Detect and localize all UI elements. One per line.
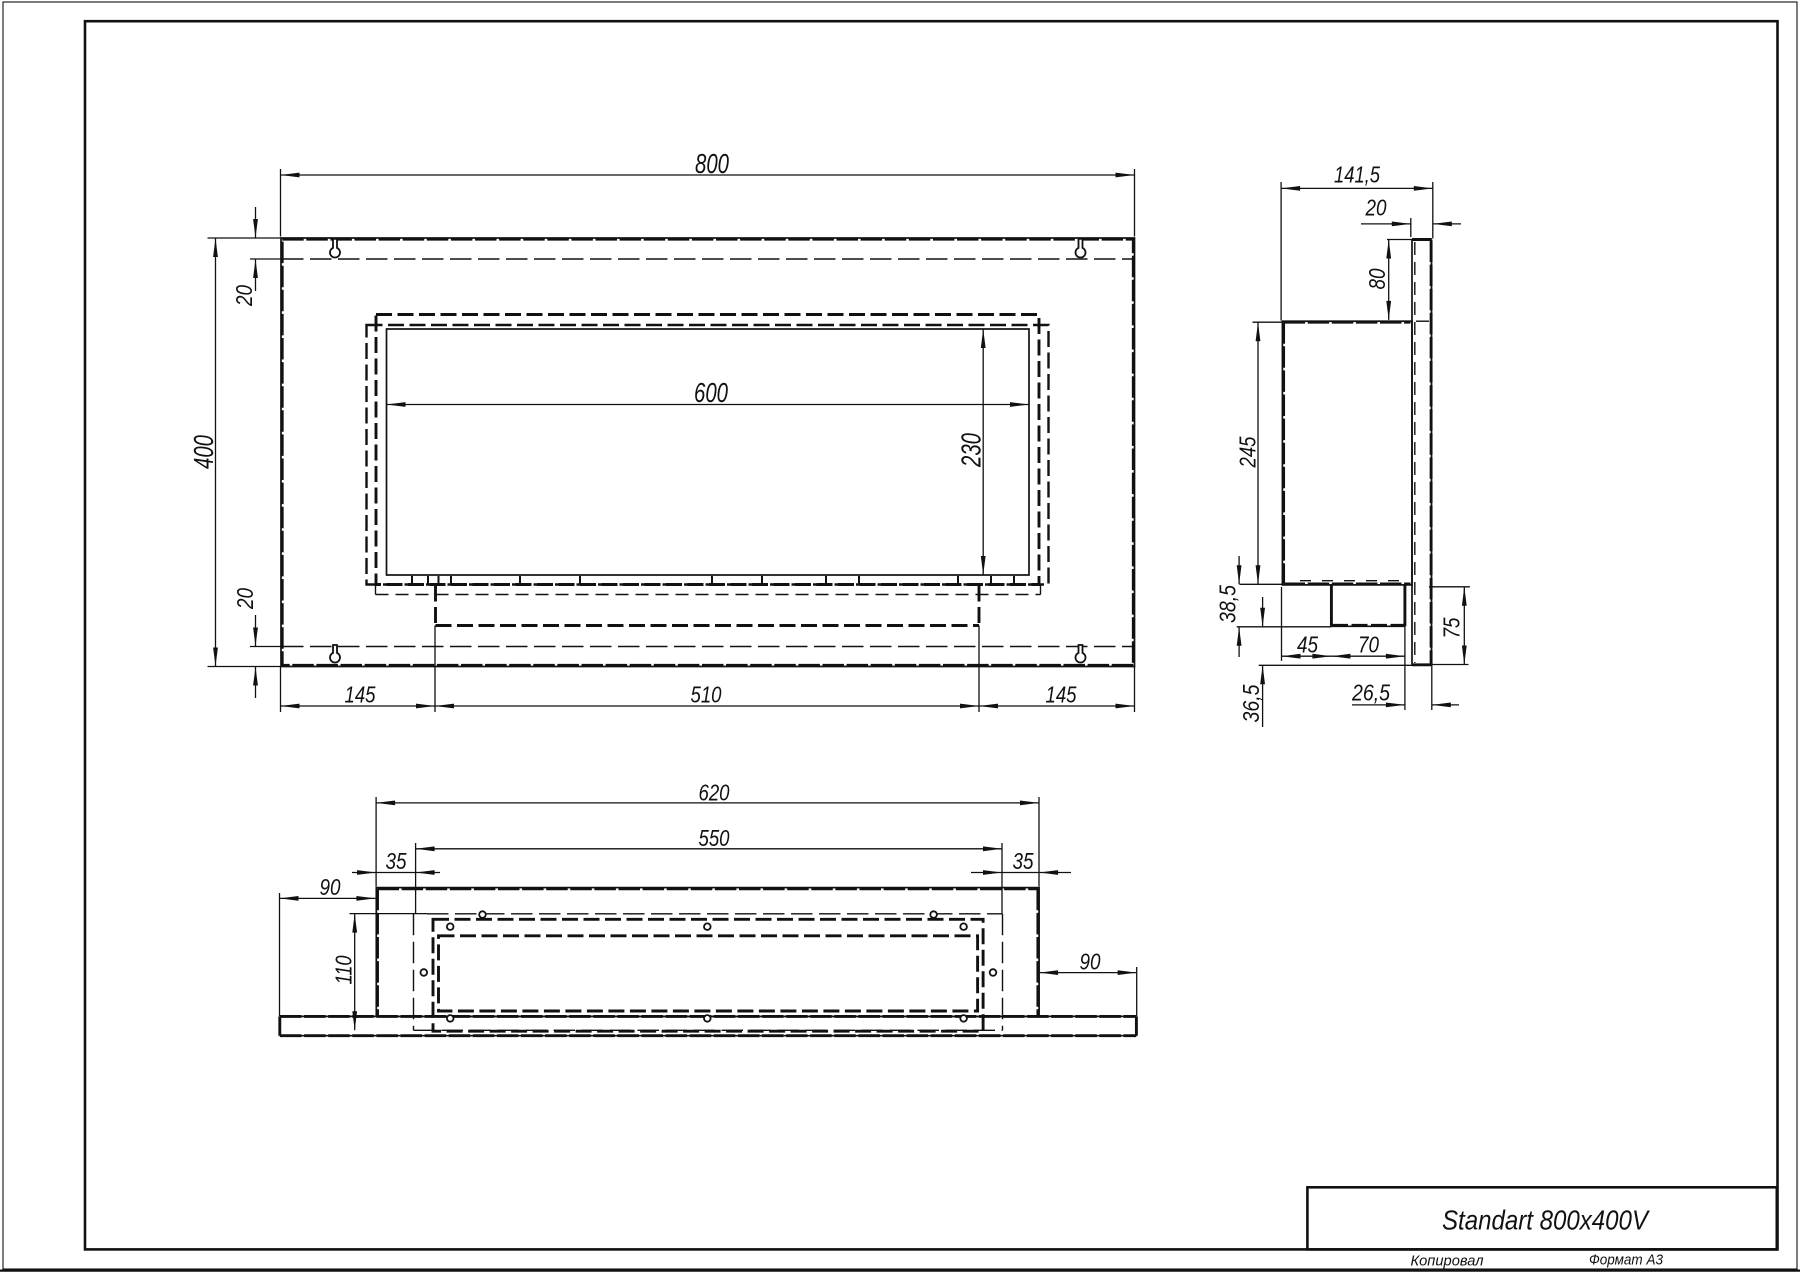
svg-text:90: 90	[1080, 949, 1101, 975]
svg-text:510: 510	[691, 682, 722, 708]
svg-text:Формат А3: Формат А3	[1589, 1252, 1663, 1268]
svg-text:26,5: 26,5	[1351, 680, 1390, 706]
svg-text:Standart 800x400V: Standart 800x400V	[1442, 1205, 1650, 1236]
svg-text:550: 550	[699, 825, 730, 851]
svg-text:45: 45	[1297, 632, 1318, 658]
svg-text:35: 35	[1013, 848, 1034, 874]
svg-text:230: 230	[956, 433, 987, 468]
svg-text:20: 20	[231, 285, 257, 307]
svg-text:800: 800	[695, 148, 729, 179]
svg-text:20: 20	[1365, 195, 1387, 221]
svg-text:145: 145	[1046, 682, 1077, 708]
svg-text:400: 400	[188, 435, 219, 469]
svg-text:145: 145	[345, 682, 376, 708]
svg-text:70: 70	[1358, 632, 1379, 658]
svg-text:90: 90	[320, 874, 341, 900]
svg-text:600: 600	[694, 377, 728, 408]
svg-text:141,5: 141,5	[1334, 162, 1380, 188]
svg-text:36,5: 36,5	[1238, 684, 1264, 722]
svg-text:245: 245	[1235, 436, 1261, 468]
svg-text:75: 75	[1439, 617, 1465, 638]
svg-text:110: 110	[331, 955, 357, 984]
svg-text:35: 35	[386, 848, 407, 874]
svg-text:38,5: 38,5	[1215, 585, 1241, 623]
svg-text:Копировал: Копировал	[1411, 1253, 1484, 1269]
svg-text:80: 80	[1364, 268, 1390, 289]
svg-text:20: 20	[232, 588, 258, 610]
svg-text:620: 620	[699, 780, 730, 806]
